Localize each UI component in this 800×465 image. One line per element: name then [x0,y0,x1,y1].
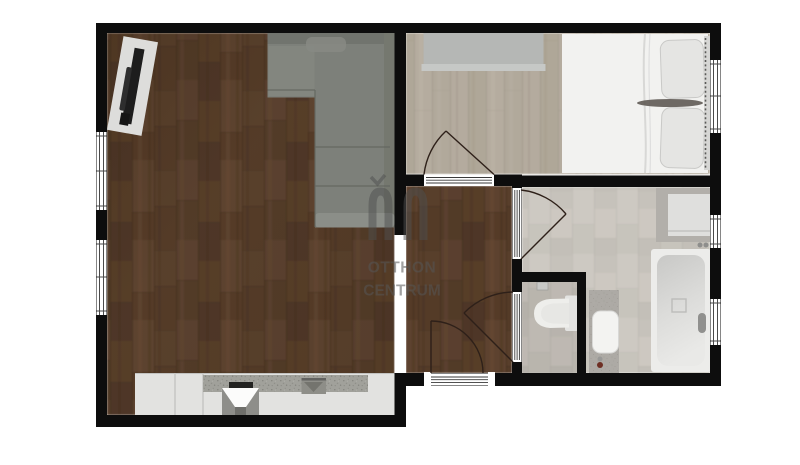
svg-text:OTTHON: OTTHON [368,260,436,277]
svg-text:CENTRUM: CENTRUM [363,283,441,300]
